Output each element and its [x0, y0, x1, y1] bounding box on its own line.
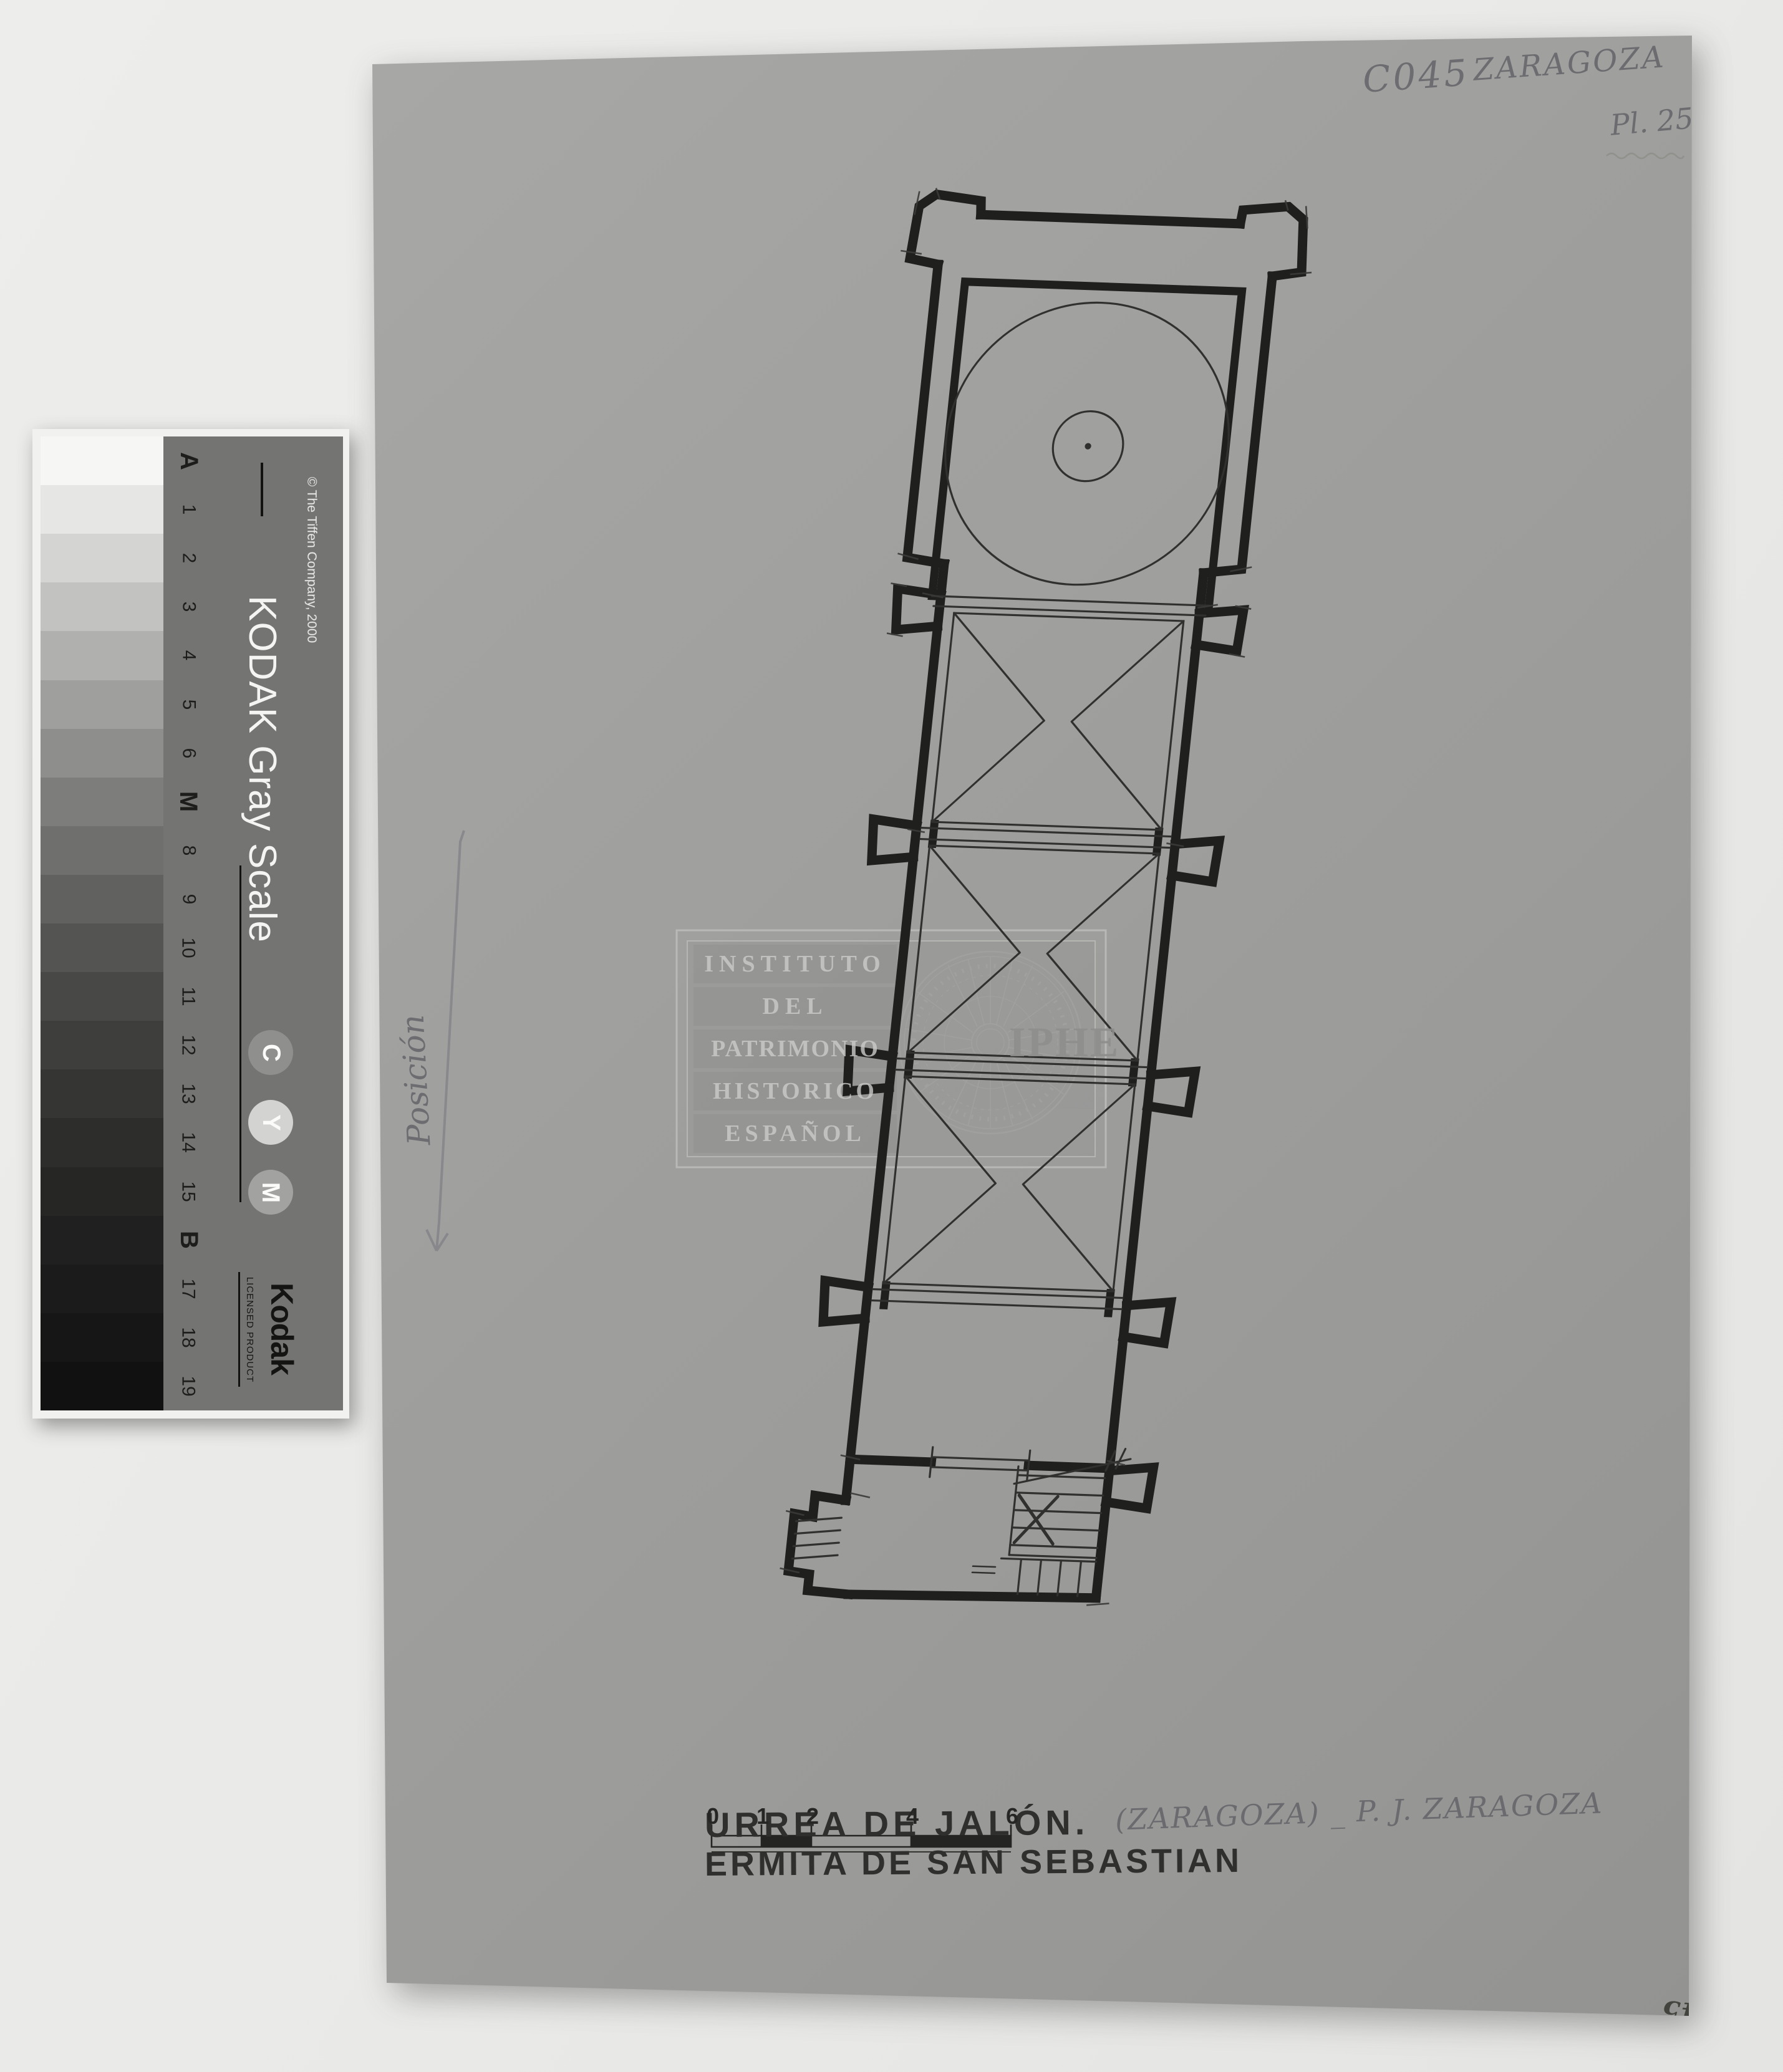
gray-patch-17	[41, 1265, 163, 1314]
step-label-9: 9	[166, 875, 211, 923]
tower-left	[909, 194, 983, 266]
cym-circle-M: M	[248, 1170, 293, 1215]
step-label-13: 13	[166, 1069, 211, 1118]
porch-steps	[792, 1516, 841, 1561]
watermark-line: HISTORICO	[693, 1072, 897, 1111]
tower-right	[1235, 205, 1308, 277]
gray-patch-15	[41, 1167, 163, 1217]
gray-patch-14	[41, 1118, 163, 1167]
step-label-12: 12	[166, 1021, 211, 1069]
scale-label-6: 6	[998, 1803, 1026, 1829]
scale-label-0: 0	[699, 1803, 727, 1829]
gray-patch-1	[41, 485, 163, 534]
step-label-5: 5	[166, 680, 211, 729]
step-label-2: 2	[166, 534, 211, 582]
gray-patch-A	[41, 436, 163, 486]
gray-patch-8	[41, 826, 163, 875]
cym-circle-Y: Y	[248, 1100, 293, 1145]
scale-label-1: 1	[749, 1803, 776, 1829]
corner-number: 45	[1660, 1993, 1701, 2028]
step-label-11: 11	[166, 972, 211, 1021]
scanned-archive-page: { "document": { "archive_code": "C045", …	[0, 0, 1783, 2072]
rule-line	[261, 463, 263, 516]
step-label-column: A123456M89101112131415B171819	[166, 436, 211, 1410]
step-label-4: 4	[166, 631, 211, 680]
step-label-18: 18	[166, 1313, 211, 1362]
gray-patch-12	[41, 1021, 163, 1070]
pl25-underline-scribble	[1607, 153, 1684, 158]
iphe-logo-text: IPHE	[1009, 1018, 1146, 1067]
gray-patch-3	[41, 582, 163, 632]
scale-label-2: 2	[799, 1803, 826, 1829]
church-floor-plan	[760, 187, 1319, 1608]
watermark-line: PATRIMONIO	[693, 1029, 897, 1068]
title-line-2: ERMITA DE SAN SEBASTIAN	[705, 1841, 1242, 1884]
gray-patch-18	[41, 1313, 163, 1362]
cym-circle-C: C	[248, 1030, 293, 1075]
gray-patch-4	[41, 631, 163, 680]
gray-patch-13	[41, 1069, 163, 1119]
nave-right-wall	[1096, 573, 1204, 1598]
step-label-17: 17	[166, 1265, 211, 1313]
kodak-title: KODAK Gray Scale	[16, 746, 508, 791]
gray-patch-10	[41, 923, 163, 973]
scale-label-4: 4	[899, 1803, 926, 1829]
gray-patch-11	[41, 972, 163, 1021]
gray-patch-9	[41, 875, 163, 924]
step-label-A: A	[166, 436, 211, 485]
door-wall	[850, 1459, 1109, 1468]
gray-patch-column	[41, 436, 163, 1410]
watermark-line: DEL	[693, 987, 897, 1026]
step-label-10: 10	[166, 923, 211, 972]
gray-patch-19	[41, 1362, 163, 1411]
kodak-gray-scale-strip: A123456M89101112131415B171819 KODAK Gray…	[32, 429, 349, 1419]
tiffen-copyright: © The Tiffen Company, 2000	[208, 552, 414, 568]
step-label-B: B	[166, 1216, 211, 1265]
archive-code-annotation: C045	[1361, 51, 1471, 101]
step-label-19: 19	[166, 1362, 211, 1410]
rule-line	[239, 865, 241, 1202]
watermark-line: ESPAÑOL	[693, 1114, 897, 1153]
step-label-8: 8	[166, 826, 211, 875]
watermark-line: INSTITUTO	[693, 945, 897, 983]
kodak-brand-text: Kodak	[226, 1311, 338, 1346]
step-label-1: 1	[166, 485, 211, 534]
gray-patch-B	[41, 1216, 163, 1265]
step-label-14: 14	[166, 1118, 211, 1167]
gray-patch-2	[41, 534, 163, 583]
head-top-wall	[981, 214, 1240, 224]
step-label-15: 15	[166, 1167, 211, 1216]
gray-patch-5	[41, 680, 163, 730]
step-label-3: 3	[166, 582, 211, 631]
